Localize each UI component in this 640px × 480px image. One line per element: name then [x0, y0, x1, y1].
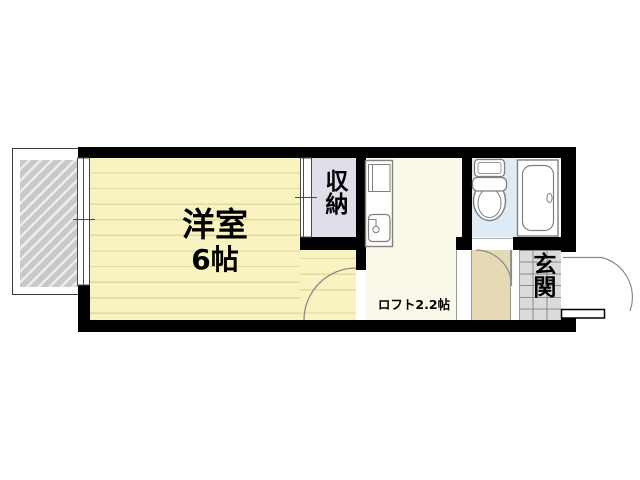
loft-hall-floor — [366, 158, 462, 320]
floor-plan: 洋室 6帖 収納 玄関 ロフト2.2帖 — [0, 0, 640, 480]
bath-zone-floor — [517, 158, 561, 237]
label-main-room-size: 6帖 — [150, 245, 280, 275]
label-main-room: 洋室 — [150, 207, 280, 243]
label-entrance: 玄関 — [529, 252, 554, 298]
wall-left-lower — [78, 284, 90, 320]
label-loft: ロフト2.2帖 — [366, 298, 462, 312]
wall-right-lower — [561, 310, 576, 332]
hallway-floor — [472, 250, 510, 320]
wall-under-bath-left — [456, 237, 472, 250]
main-room-floor-extension — [300, 250, 356, 320]
balcony-hatch-area — [20, 160, 78, 287]
wall-top — [78, 147, 576, 158]
washroom-floor — [472, 158, 517, 237]
wall-closet-right — [356, 158, 366, 270]
wall-bottom — [78, 320, 576, 332]
label-closet: 収納 — [321, 169, 346, 215]
entrance-step — [510, 250, 520, 320]
entry-door-swing — [562, 258, 633, 319]
wall-right-upper — [561, 158, 576, 252]
